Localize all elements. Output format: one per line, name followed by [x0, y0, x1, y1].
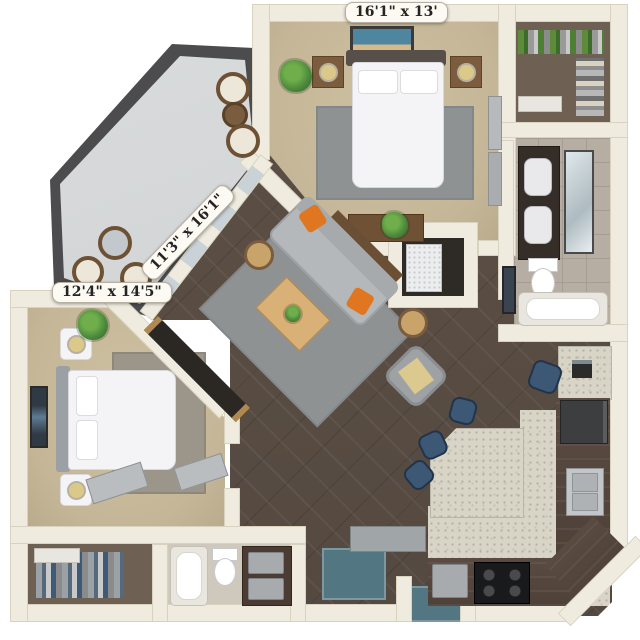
pillow: [76, 376, 98, 416]
side-table: [398, 308, 428, 338]
closet-sliding-door: [488, 96, 502, 150]
table-lamp: [67, 335, 86, 354]
pillow: [400, 70, 438, 94]
sink: [524, 158, 552, 196]
mirror: [564, 150, 594, 254]
wall: [10, 290, 28, 622]
throw-pillow: [345, 286, 375, 316]
wall: [290, 544, 306, 622]
dishwasher: [432, 564, 468, 598]
refrigerator: [560, 400, 608, 444]
bathtub-basin: [526, 298, 600, 320]
water-heater: [406, 244, 442, 292]
wall: [10, 526, 306, 544]
wall: [498, 324, 628, 342]
wall: [498, 122, 628, 138]
dimension-label-bedroom-top: 16'1" x 13': [345, 2, 448, 23]
closet-shelf: [518, 96, 562, 112]
side-table: [244, 240, 274, 270]
wall-art: [30, 386, 48, 448]
stove: [474, 562, 530, 604]
table-lamp: [457, 63, 476, 82]
throw-blanket: [398, 358, 434, 395]
wall: [152, 544, 168, 622]
wall: [14, 604, 398, 622]
table-plant: [282, 303, 305, 326]
potted-plant: [78, 310, 108, 340]
potted-plant: [280, 60, 312, 92]
floor-plan-canvas: 16'1" x 13' 11'3" x 16'1" 12'4" x 14'5": [0, 0, 640, 640]
table-lamp: [319, 63, 338, 82]
sink-basin: [572, 493, 598, 511]
pillow: [358, 70, 398, 94]
wicker-chair: [216, 72, 250, 106]
dryer: [248, 578, 284, 600]
entry-bench: [350, 526, 426, 552]
dimension-label-bedroom-left: 12'4" x 14'5": [52, 282, 172, 303]
closet-sliding-door: [488, 152, 502, 206]
hanging-clothes: [576, 58, 604, 116]
wicker-chair: [226, 124, 260, 158]
wall: [474, 604, 570, 622]
entry-tile: [322, 548, 386, 600]
kitchen-sink: [566, 468, 604, 516]
hanging-clothes: [518, 30, 604, 54]
hallway-wall-art: [502, 266, 516, 314]
balcony-table: [98, 226, 132, 260]
wall: [610, 4, 628, 562]
pillow: [76, 420, 98, 460]
sink-basin: [572, 473, 598, 492]
bathtub-basin: [176, 552, 202, 600]
closet-shelf: [34, 548, 80, 563]
table-lamp: [67, 481, 86, 500]
washer: [248, 552, 284, 574]
entry-jamb: [396, 576, 412, 622]
sink: [524, 206, 552, 244]
floor-plant: [382, 212, 408, 238]
toilet: [214, 558, 236, 586]
laptop: [572, 360, 592, 378]
kitchen-island: [430, 428, 524, 518]
